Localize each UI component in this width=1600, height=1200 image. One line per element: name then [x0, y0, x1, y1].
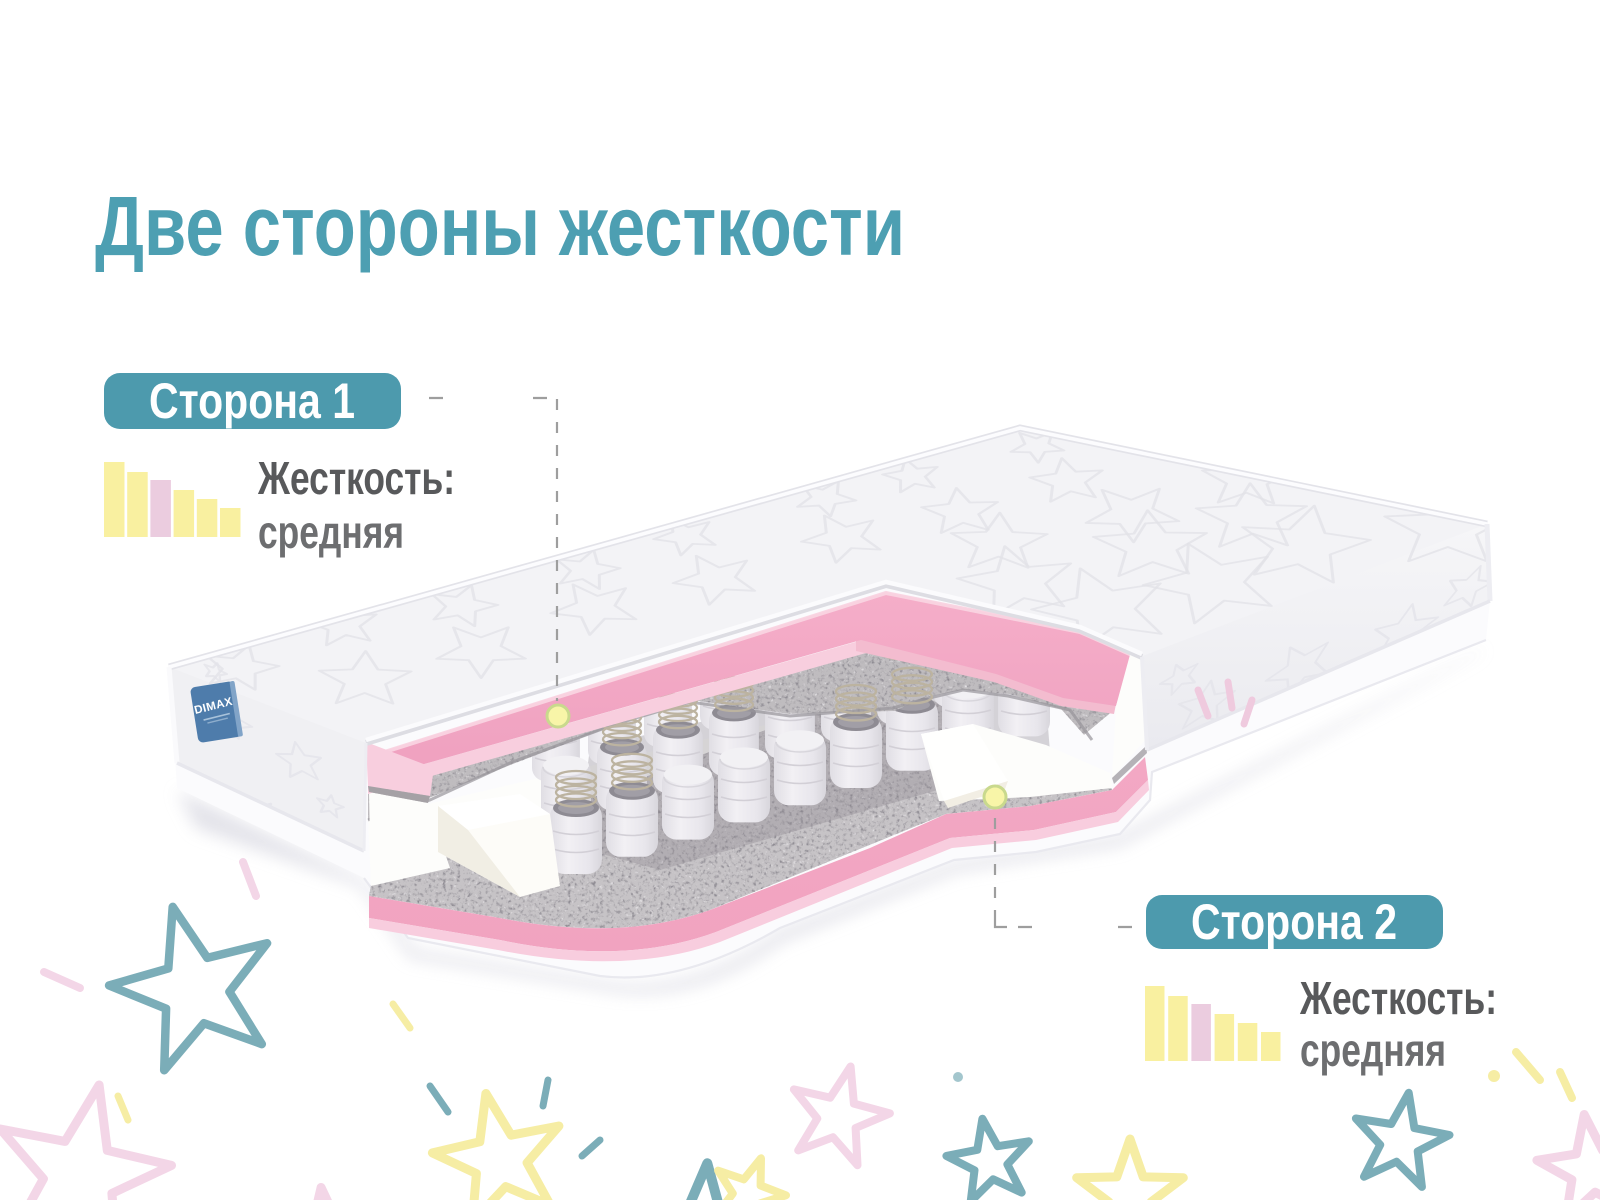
svg-text:средняя: средняя — [258, 506, 404, 558]
svg-text:Сторона 2: Сторона 2 — [1191, 894, 1397, 950]
svg-text:Сторона 1: Сторона 1 — [149, 373, 355, 429]
svg-text:средняя: средняя — [1300, 1024, 1446, 1076]
svg-text:Две стороны жесткости: Две стороны жесткости — [95, 179, 905, 273]
svg-text:Жесткость:: Жесткость: — [1299, 972, 1497, 1024]
svg-text:Жесткость:: Жесткость: — [257, 452, 455, 504]
